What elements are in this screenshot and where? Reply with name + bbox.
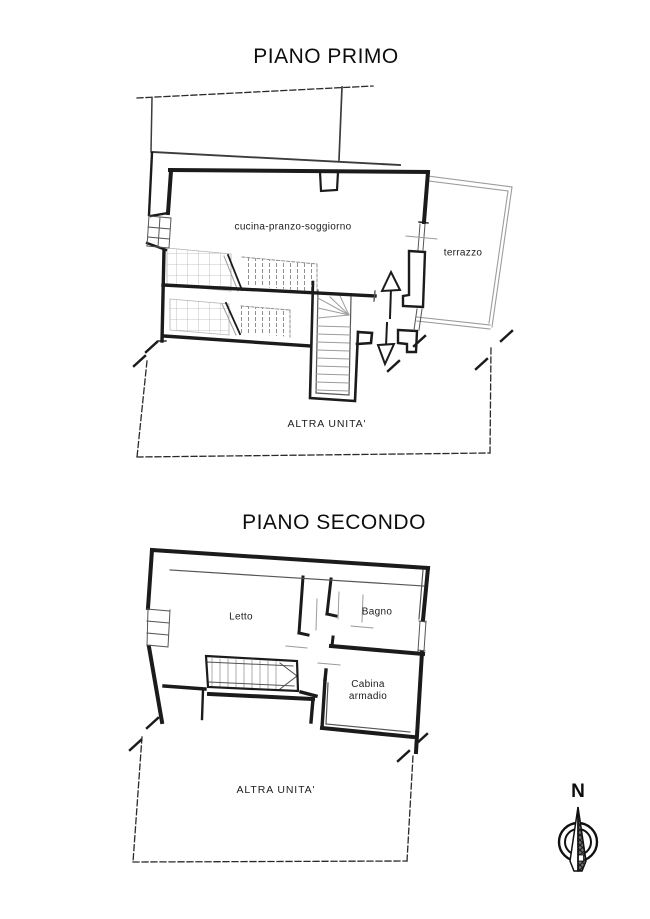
plan1-title: PIANO PRIMO — [253, 45, 399, 69]
stair-direction-arrows — [378, 272, 400, 364]
other-unit-label-plan1: ALTRA UNITA' — [288, 418, 367, 430]
floor-plan-drawing — [0, 0, 650, 919]
room-label-bathroom: Bagno — [362, 607, 392, 618]
plan2-title: PIANO SECONDO — [242, 511, 426, 535]
plan2-drawing — [130, 550, 428, 862]
room-label-terrace: terrazzo — [444, 248, 483, 259]
compass-rose-icon — [559, 807, 597, 871]
other-unit-label-plan2: ALTRA UNITA' — [237, 784, 316, 796]
room-label-walk-in-closet: Cabina armadio — [344, 679, 392, 703]
north-label: N — [571, 781, 585, 803]
plan1-drawing — [134, 86, 512, 457]
room-label-bedroom: Letto — [229, 612, 253, 623]
floor-plan-document: PIANO PRIMO cucina-pranzo-soggiorno terr… — [0, 0, 650, 919]
room-label-kitchen-living: cucina-pranzo-soggiorno — [235, 222, 352, 233]
